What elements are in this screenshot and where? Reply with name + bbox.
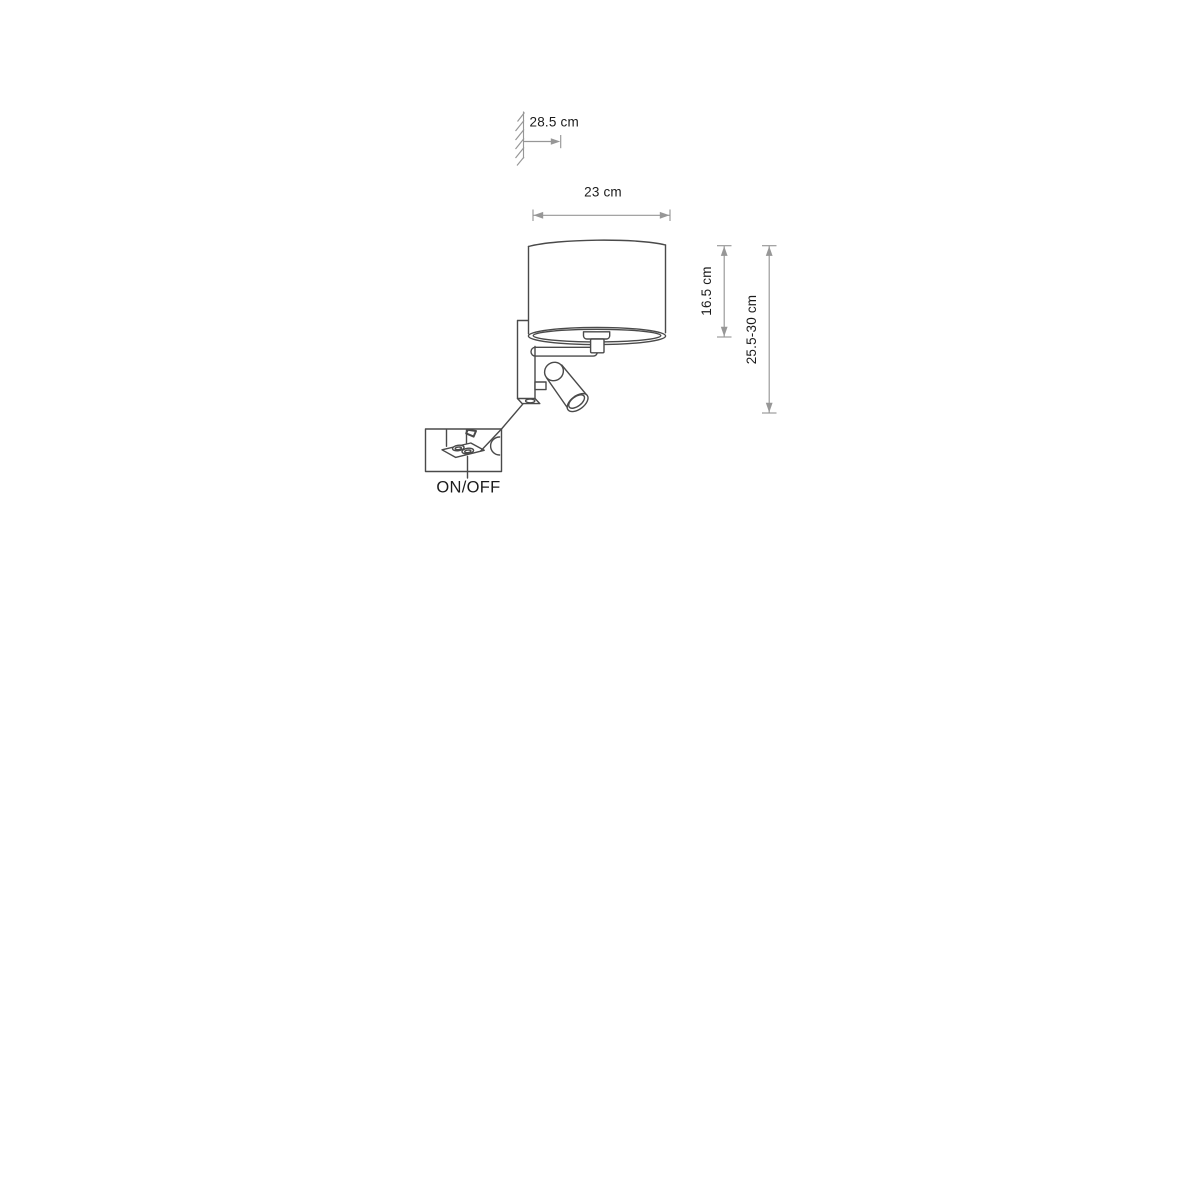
arrow-right-icon — [660, 212, 670, 219]
reading-spotlight — [535, 359, 591, 416]
drawing-canvas: 28.5 cm 23 cm — [0, 0, 1200, 1200]
arrow-right-icon — [551, 138, 561, 145]
wall-symbol — [516, 112, 525, 166]
shade-top-edge — [529, 240, 666, 246]
lamp-arm — [531, 347, 598, 356]
overall-height-label: 25.5-30 cm — [744, 295, 759, 365]
arrow-left-icon — [534, 212, 544, 219]
arrow-up-icon — [721, 246, 728, 256]
arrow-down-icon — [721, 327, 728, 337]
shade-width-label: 23 cm — [584, 185, 622, 200]
socket-flange — [584, 332, 610, 339]
dimension-wall-offset: 28.5 cm — [524, 115, 579, 149]
dimension-shade-width: 23 cm — [533, 185, 670, 222]
lamp-shade — [528, 240, 665, 344]
spotlight-bracket — [535, 382, 546, 390]
lamp-technical-drawing: 28.5 cm 23 cm — [0, 0, 1200, 1200]
dimension-overall-height: 25.5-30 cm — [744, 246, 777, 413]
arrow-down-icon — [766, 403, 773, 413]
switch-detail-callout: ON/OFF — [426, 404, 524, 497]
arrow-up-icon — [766, 246, 773, 256]
wall-offset-label: 28.5 cm — [530, 115, 579, 130]
switch-label: ON/OFF — [436, 479, 500, 497]
dimension-shade-height: 16.5 cm — [699, 246, 732, 337]
socket-body — [591, 339, 604, 353]
plate-top-left-edges — [518, 321, 529, 399]
shade-height-label: 16.5 cm — [699, 266, 714, 315]
